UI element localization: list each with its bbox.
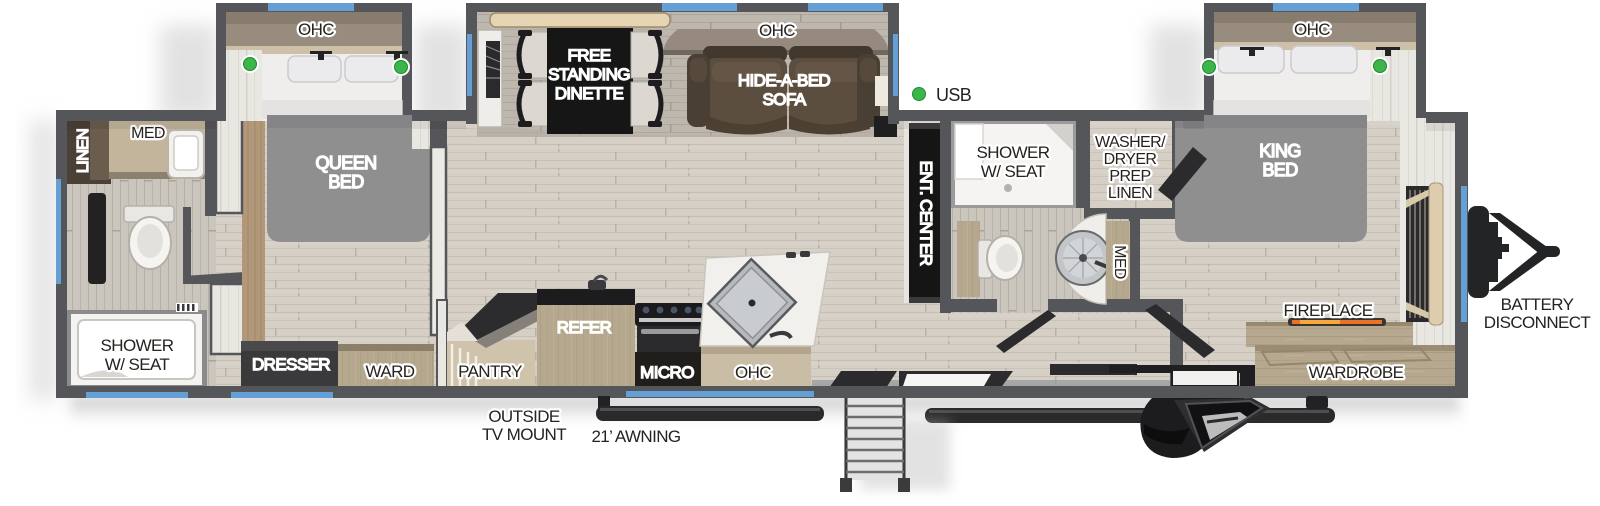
svg-text:USB: USB [936,85,972,105]
svg-text:W/ SEAT: W/ SEAT [105,355,170,374]
svg-text:HIDE-A-BED: HIDE-A-BED [738,71,831,90]
svg-text:ENT. CENTER: ENT. CENTER [917,161,936,266]
svg-text:WARDROBE: WARDROBE [1309,363,1404,382]
svg-text:MICRO: MICRO [640,363,694,382]
svg-text:SHOWER: SHOWER [977,143,1050,162]
svg-text:OUTSIDE: OUTSIDE [488,407,560,426]
svg-text:LINEN: LINEN [75,129,92,173]
svg-text:BED: BED [1262,160,1298,180]
svg-text:W/ SEAT: W/ SEAT [981,162,1046,181]
svg-text:STANDING: STANDING [548,65,630,84]
svg-text:OHC: OHC [298,20,334,39]
svg-text:BED: BED [328,172,364,192]
svg-text:SOFA: SOFA [763,90,807,109]
svg-text:WARD: WARD [366,362,415,381]
svg-text:PREP: PREP [1109,168,1150,185]
svg-text:FREE: FREE [568,46,611,65]
svg-text:REFER: REFER [557,318,612,337]
svg-text:DRESSER: DRESSER [252,355,330,374]
svg-text:OHC: OHC [759,21,795,40]
svg-text:QUEEN: QUEEN [315,153,376,173]
svg-text:OHC: OHC [735,363,771,382]
svg-text:LINEN: LINEN [1108,185,1152,202]
svg-text:PANTRY: PANTRY [458,362,522,381]
svg-text:MED: MED [1111,245,1128,279]
svg-text:DINETTE: DINETTE [555,84,624,103]
svg-text:DRYER: DRYER [1104,151,1157,168]
svg-text:BATTERY: BATTERY [1501,295,1574,314]
svg-text:SHOWER: SHOWER [101,336,174,355]
svg-text:21’ AWNING: 21’ AWNING [591,427,680,446]
svg-text:OHC: OHC [1294,20,1330,39]
svg-text:FIREPLACE: FIREPLACE [1283,301,1372,320]
svg-text:TV MOUNT: TV MOUNT [482,425,566,444]
svg-text:KING: KING [1259,141,1301,161]
svg-text:WASHER/: WASHER/ [1095,134,1166,151]
svg-text:DISCONNECT: DISCONNECT [1484,313,1591,332]
